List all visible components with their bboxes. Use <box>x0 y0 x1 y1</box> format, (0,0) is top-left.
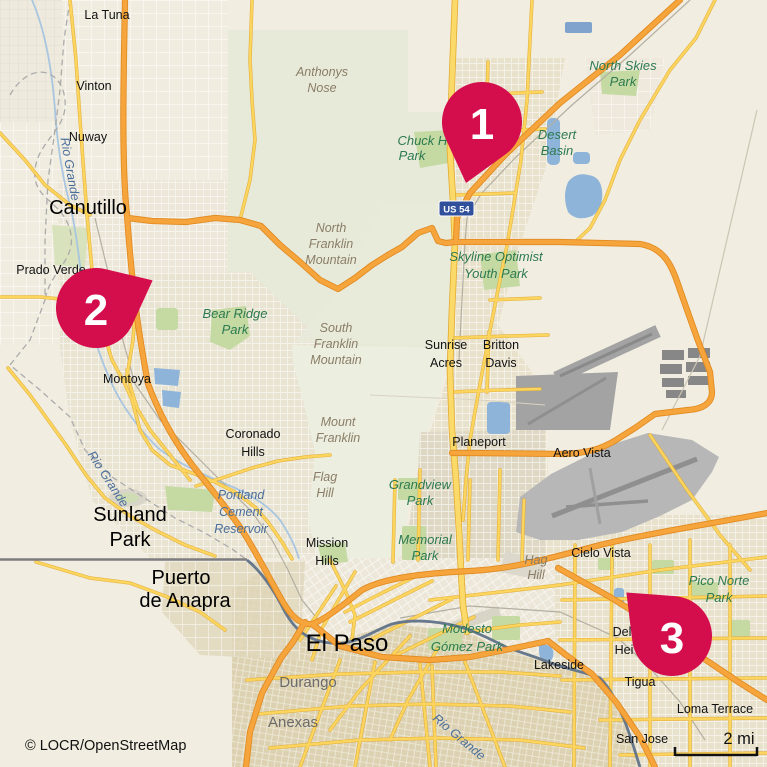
svg-text:Durango: Durango <box>279 674 337 691</box>
svg-text:Bear Ridge: Bear Ridge <box>202 306 267 321</box>
svg-text:Loma Terrace: Loma Terrace <box>677 702 753 716</box>
svg-text:Hill: Hill <box>316 486 335 500</box>
svg-text:Cement: Cement <box>219 505 263 519</box>
svg-text:Park: Park <box>109 529 151 551</box>
svg-text:Park: Park <box>412 548 440 563</box>
svg-text:Reservoir: Reservoir <box>214 522 268 536</box>
svg-text:Sunland: Sunland <box>93 504 166 526</box>
svg-text:Vinton: Vinton <box>76 79 111 93</box>
svg-text:Britton: Britton <box>483 338 519 352</box>
svg-text:San Jose: San Jose <box>616 732 668 746</box>
svg-text:Nuway: Nuway <box>69 130 108 144</box>
svg-text:Montoya: Montoya <box>103 372 151 386</box>
svg-text:Mountain: Mountain <box>305 253 356 267</box>
svg-text:Tigua: Tigua <box>625 675 656 689</box>
svg-text:de Anapra: de Anapra <box>139 590 231 612</box>
svg-text:Portland: Portland <box>218 488 266 502</box>
svg-text:North: North <box>316 221 347 235</box>
svg-text:2: 2 <box>84 286 108 335</box>
svg-text:South: South <box>320 321 353 335</box>
svg-text:North Skies: North Skies <box>589 58 657 73</box>
svg-text:Pico Norte: Pico Norte <box>689 573 750 588</box>
svg-text:Park: Park <box>407 493 435 508</box>
svg-text:Coronado: Coronado <box>226 427 281 441</box>
svg-text:Canutillo: Canutillo <box>49 197 127 219</box>
svg-text:2 mi: 2 mi <box>723 730 754 748</box>
svg-text:Aero Vista: Aero Vista <box>553 446 610 460</box>
svg-text:Basin: Basin <box>541 143 574 158</box>
svg-text:© LOCR/OpenStreetMap: © LOCR/OpenStreetMap <box>25 738 186 754</box>
svg-text:Del: Del <box>613 625 632 639</box>
svg-text:Skyline Optimist: Skyline Optimist <box>449 249 544 264</box>
svg-text:Modesto: Modesto <box>442 621 492 636</box>
svg-text:Mount: Mount <box>321 415 356 429</box>
svg-text:Franklin: Franklin <box>314 337 359 351</box>
svg-text:La Tuna: La Tuna <box>84 8 129 22</box>
svg-text:Franklin: Franklin <box>316 431 361 445</box>
svg-text:Mountain: Mountain <box>310 353 361 367</box>
svg-text:Park: Park <box>706 590 734 605</box>
svg-text:Park: Park <box>222 322 250 337</box>
svg-text:Franklin: Franklin <box>309 237 354 251</box>
svg-text:Nose: Nose <box>307 81 336 95</box>
svg-text:Hills: Hills <box>241 445 265 459</box>
svg-text:Park: Park <box>399 148 427 163</box>
svg-text:Anthonys: Anthonys <box>295 65 348 79</box>
svg-text:Memorial: Memorial <box>398 532 453 547</box>
svg-text:Anexas: Anexas <box>268 714 318 731</box>
svg-text:El Paso: El Paso <box>306 630 389 657</box>
svg-text:Hei: Hei <box>615 643 634 657</box>
svg-text:Gómez Park: Gómez Park <box>431 639 505 654</box>
svg-text:Planeport: Planeport <box>452 435 506 449</box>
svg-text:Mission: Mission <box>306 536 348 550</box>
svg-text:Hills: Hills <box>315 554 339 568</box>
svg-text:Acres: Acres <box>430 356 462 370</box>
svg-text:Cielo Vista: Cielo Vista <box>571 546 631 560</box>
svg-text:Puerto: Puerto <box>152 567 211 589</box>
svg-text:US 54: US 54 <box>443 205 470 216</box>
svg-text:Desert: Desert <box>538 127 578 142</box>
svg-text:Hag: Hag <box>525 553 548 567</box>
svg-text:Davis: Davis <box>485 356 516 370</box>
svg-text:Grandview: Grandview <box>389 477 453 492</box>
svg-text:Park: Park <box>610 74 638 89</box>
svg-text:Sunrise: Sunrise <box>425 338 467 352</box>
svg-text:Lakeside: Lakeside <box>534 658 584 672</box>
svg-text:1: 1 <box>470 100 494 149</box>
svg-text:Flag: Flag <box>313 470 337 484</box>
svg-text:Hill: Hill <box>527 568 546 582</box>
svg-text:Youth Park: Youth Park <box>464 266 529 281</box>
svg-text:3: 3 <box>660 614 684 663</box>
